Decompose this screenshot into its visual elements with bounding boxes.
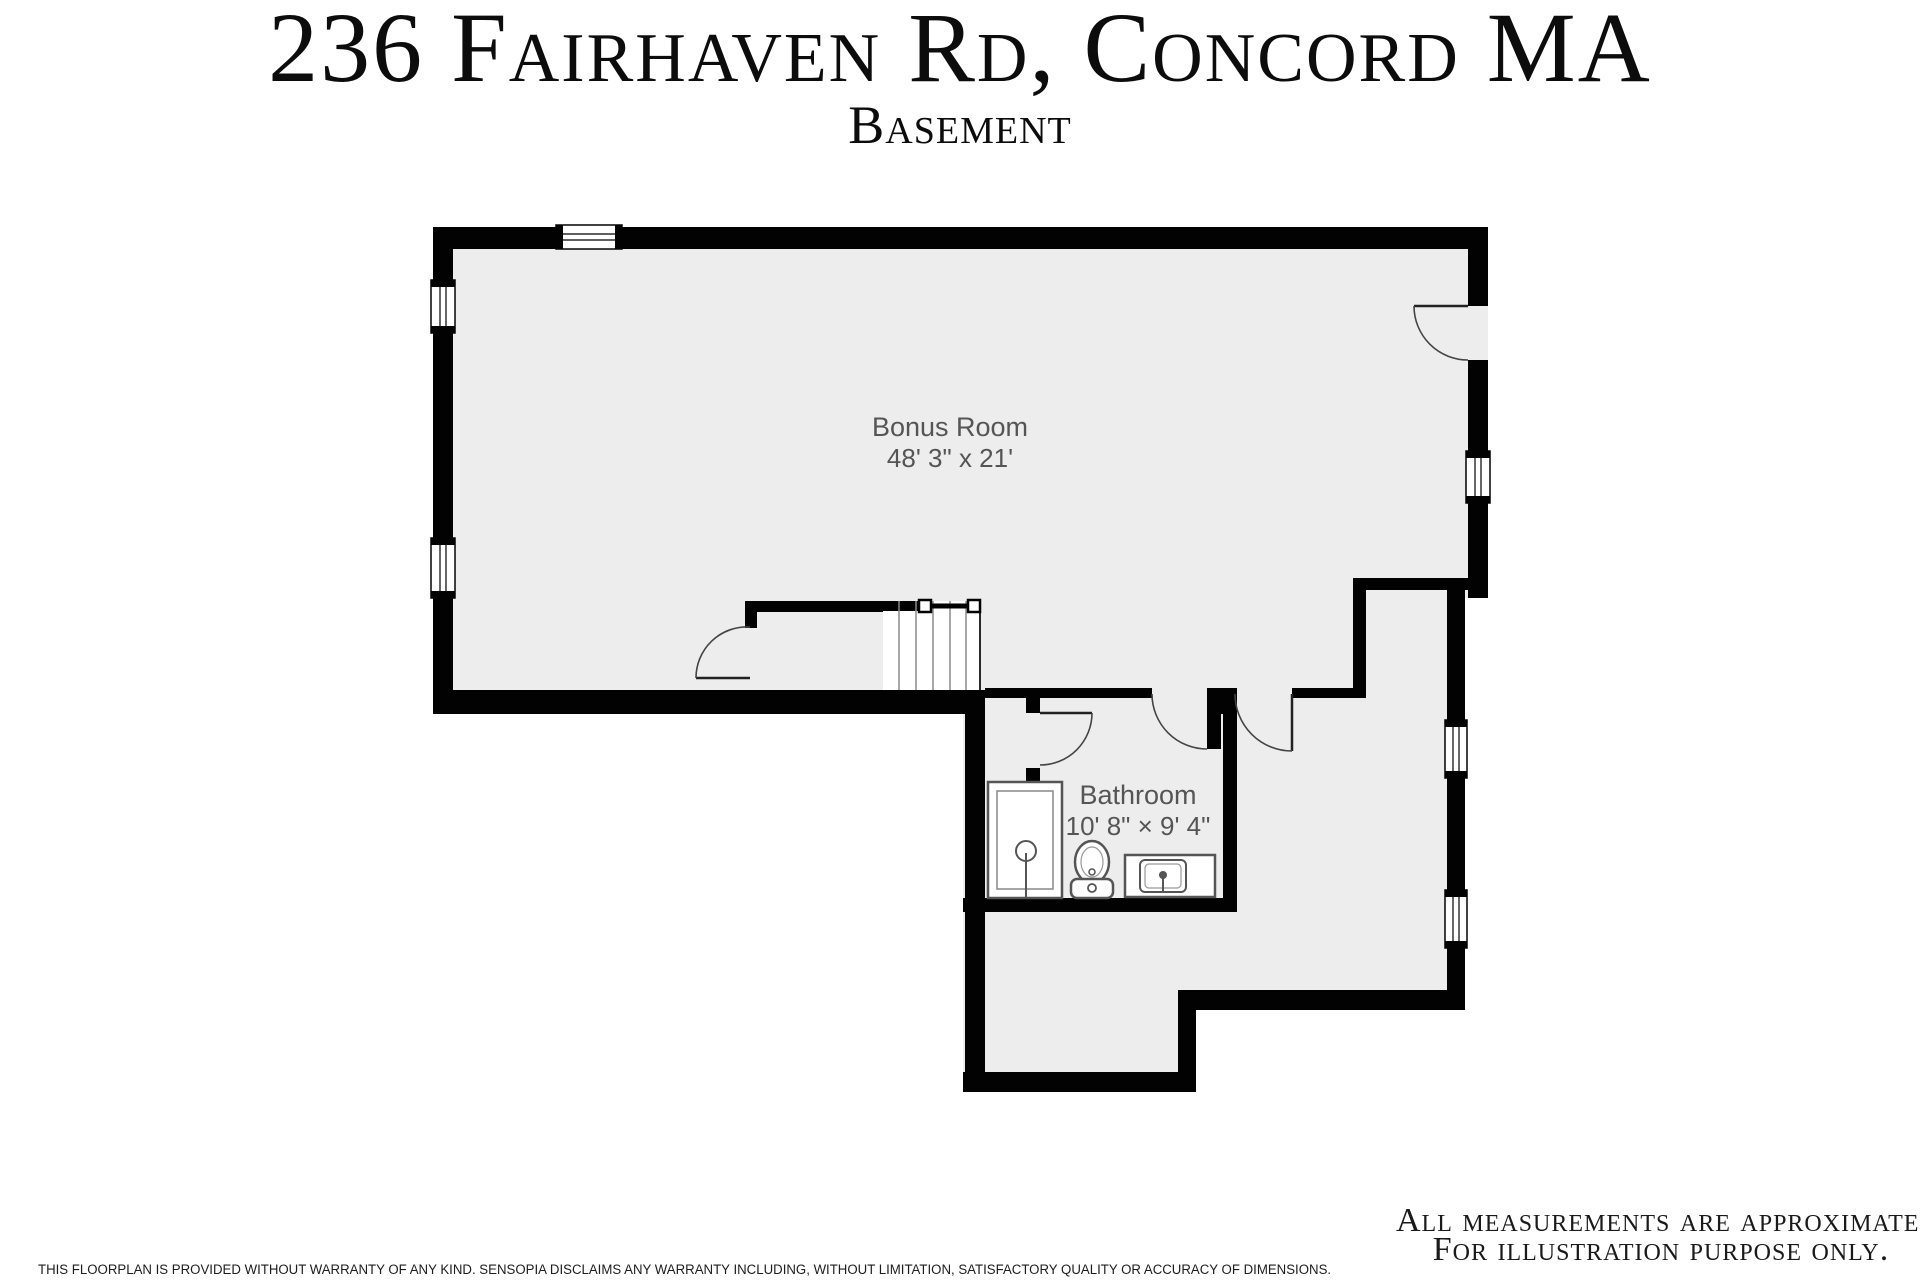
measurement-note: All measurements are approximate. For il… bbox=[1396, 1206, 1920, 1264]
bonus-room-name: Bonus Room bbox=[790, 412, 1110, 443]
bonus-room-dimensions: 48' 3" x 21' bbox=[790, 443, 1110, 474]
toilet-fixture bbox=[1071, 841, 1113, 898]
bathroom-label: Bathroom 10' 8" × 9' 4" bbox=[978, 780, 1298, 842]
bathroom-dimensions: 10' 8" × 9' 4" bbox=[978, 811, 1298, 842]
disclaimer-text: THIS FLOORPLAN IS PROVIDED WITHOUT WARRA… bbox=[38, 1262, 1331, 1277]
window-right-room-upper bbox=[1445, 720, 1467, 778]
bonus-room-label: Bonus Room 48' 3" x 21' bbox=[790, 412, 1110, 474]
window-right-wall bbox=[1466, 451, 1490, 503]
window-right-room-lower bbox=[1445, 890, 1467, 948]
window-top-wall bbox=[556, 225, 622, 249]
stairs bbox=[883, 600, 980, 690]
sink-vanity-fixture bbox=[1125, 855, 1215, 897]
bathroom-name: Bathroom bbox=[978, 780, 1298, 811]
floorplan-page: 236 Fairhaven Rd, Concord MA Basement bbox=[0, 0, 1920, 1280]
window-left-wall-upper bbox=[431, 280, 455, 333]
window-left-wall-lower bbox=[431, 538, 455, 598]
measurement-note-line2: For illustration purpose only. bbox=[1396, 1235, 1920, 1264]
floor-plan bbox=[0, 0, 1920, 1280]
